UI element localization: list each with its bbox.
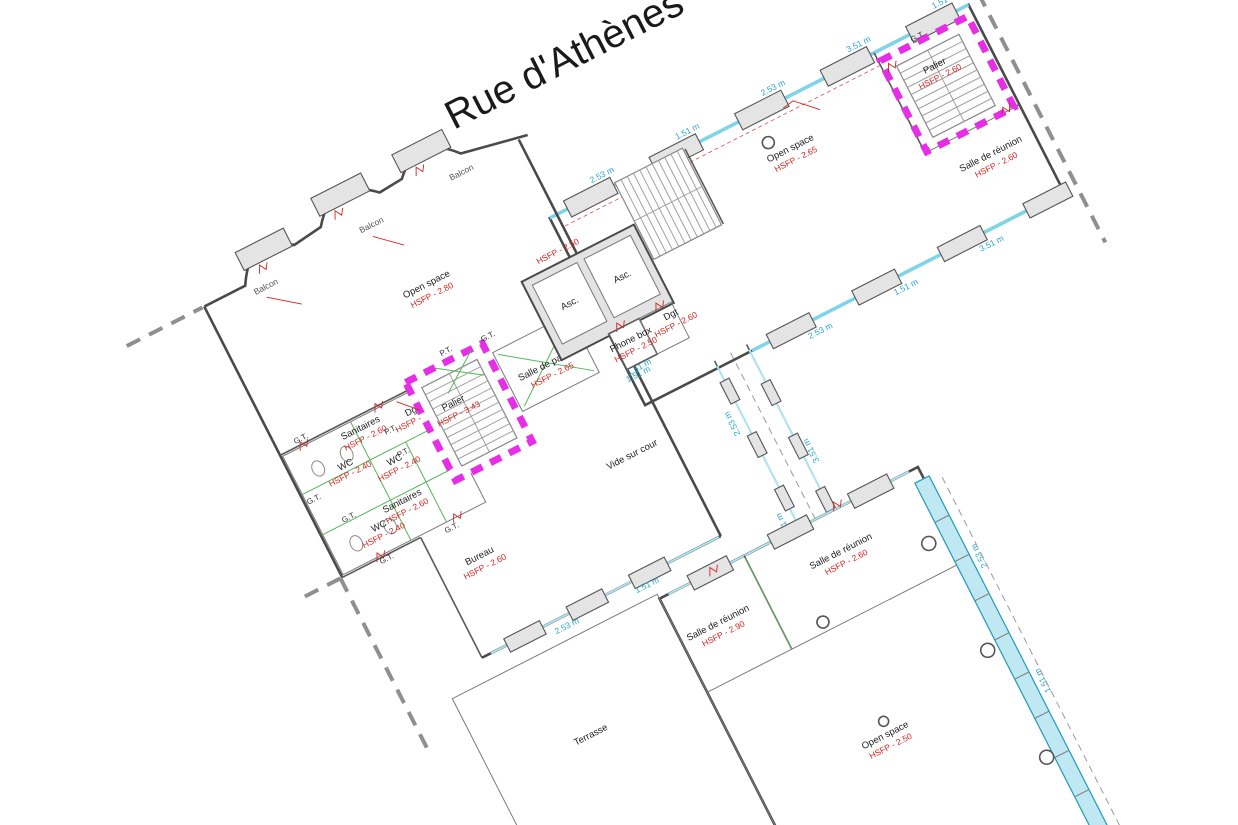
left-wing-wavy-facade [186,105,530,307]
street-name-label: Rue d'Athènes [438,0,691,138]
red-leader [267,284,302,316]
balcon-label: Balcon [358,214,386,235]
boundary-dash-bottom-left [340,578,430,754]
room-label-terrasse: Terrasse [572,722,609,748]
bottom-wing-outline [660,467,1107,825]
floor-plan-canvas: G.T. Palier HSFP - 2.60 Open space HSFP … [0,0,1238,825]
red-leader [373,226,404,256]
boundary-dash-bottom-left-2 [305,578,341,596]
dimension-label: 2.53 m [722,410,743,438]
boundary-dash-left [127,307,203,346]
left-wing-east-wall-n [519,140,578,256]
boundary-lines [177,0,1238,825]
gt-label: G.T. [479,329,496,344]
floor-plan-page: G.T. Palier HSFP - 2.60 Open space HSFP … [0,0,1238,825]
balcon-label: Balcon [447,162,475,183]
rotated-plan: G.T. Palier HSFP - 2.60 Open space HSFP … [91,0,1238,825]
bureau-south-piers [504,557,671,652]
balcon-label: Balcon [252,276,280,297]
bottom-wing: Salle de réunion HSFP - 2.90 Salle de ré… [656,451,1123,825]
balcony-slabs [228,129,458,270]
room-label-vide-sur-cour: Vide sur cour [605,437,660,472]
